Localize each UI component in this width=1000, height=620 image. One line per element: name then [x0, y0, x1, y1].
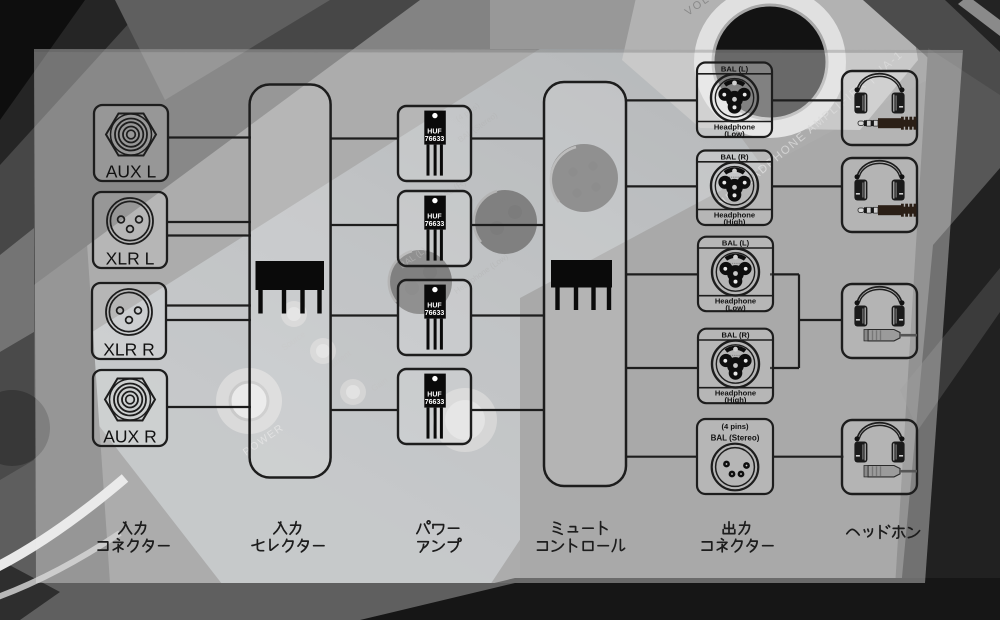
svg-text:(Low): (Low)	[725, 304, 746, 313]
svg-text:HUF: HUF	[427, 214, 442, 221]
svg-text:76633: 76633	[425, 136, 445, 143]
svg-text:HUF: HUF	[427, 129, 442, 136]
svg-text:76633: 76633	[425, 221, 445, 228]
svg-text:HUF: HUF	[427, 392, 442, 399]
svg-text:BAL (R): BAL (R)	[721, 331, 750, 340]
svg-text:BAL (L): BAL (L)	[722, 239, 750, 248]
svg-text:XLR L: XLR L	[106, 249, 155, 269]
svg-text:XLR R: XLR R	[103, 340, 155, 360]
svg-text:BAL (Stereo): BAL (Stereo)	[711, 434, 760, 443]
svg-text:BAL (R): BAL (R)	[720, 153, 749, 162]
svg-text:HUF: HUF	[427, 303, 442, 310]
svg-text:BAL (L): BAL (L)	[721, 65, 749, 74]
svg-text:(High): (High)	[725, 396, 747, 405]
svg-text:(4 pins): (4 pins)	[721, 422, 748, 431]
svg-text:(High): (High)	[724, 218, 746, 227]
svg-text:AUX L: AUX L	[106, 162, 157, 182]
svg-text:76633: 76633	[425, 310, 445, 317]
svg-text:(Low): (Low)	[724, 130, 745, 139]
svg-text:AUX R: AUX R	[103, 427, 156, 447]
svg-text:76633: 76633	[425, 399, 445, 406]
